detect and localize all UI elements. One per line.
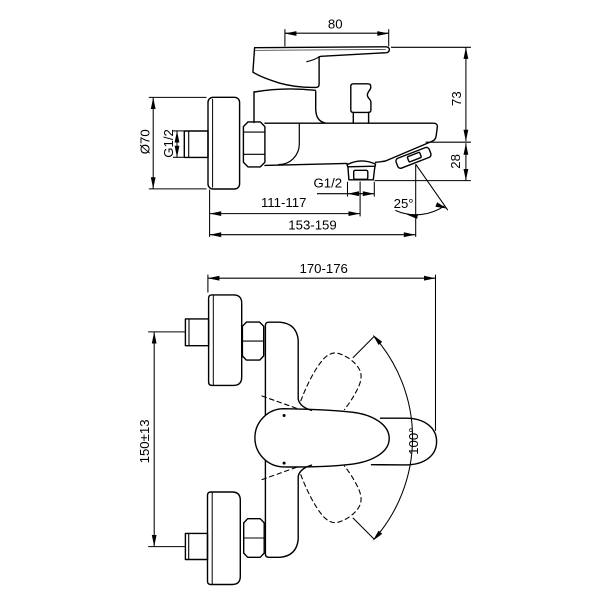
svg-text:28: 28 (448, 154, 463, 169)
svg-text:170-176: 170-176 (299, 261, 347, 276)
svg-text:153-159: 153-159 (288, 218, 336, 233)
svg-text:150±13: 150±13 (137, 419, 152, 463)
svg-text:25°: 25° (394, 196, 414, 211)
svg-text:80: 80 (328, 16, 343, 31)
svg-text:100°: 100° (406, 428, 421, 455)
svg-text:G1/2: G1/2 (161, 129, 176, 158)
svg-text:73: 73 (449, 91, 464, 106)
svg-text:Ø70: Ø70 (137, 129, 152, 154)
svg-text:111-117: 111-117 (261, 195, 306, 210)
svg-text:G1/2: G1/2 (314, 175, 343, 190)
